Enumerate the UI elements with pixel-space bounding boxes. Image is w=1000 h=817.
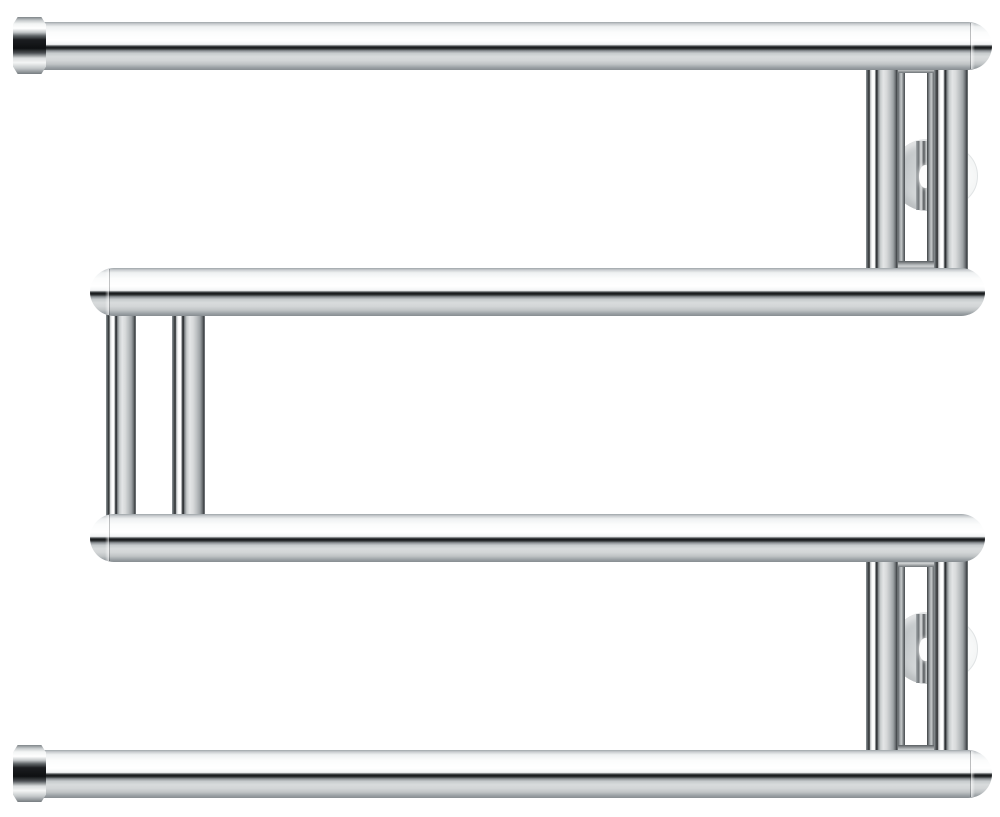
towel-bar-2: [90, 268, 985, 316]
vertical-tube-bottom-right-front: [866, 558, 898, 754]
vertical-tube-left-front: [106, 310, 136, 520]
vertical-tube-left-rear: [172, 310, 205, 520]
vertical-tube-top-right-rear: [934, 64, 968, 272]
towel-bar-4: [40, 750, 992, 798]
towel-bar-3: [90, 514, 985, 562]
product-image: [0, 0, 1000, 817]
vertical-tube-top-right-front: [866, 64, 898, 272]
bracket-leg-bottom-left: [897, 558, 905, 754]
hex-end-cap-bottom: [13, 745, 46, 802]
towel-bar-1: [40, 22, 992, 70]
vertical-tube-bottom-right-rear: [934, 558, 968, 754]
bracket-leg-top-left: [897, 64, 905, 270]
hex-end-cap-top: [13, 17, 46, 74]
